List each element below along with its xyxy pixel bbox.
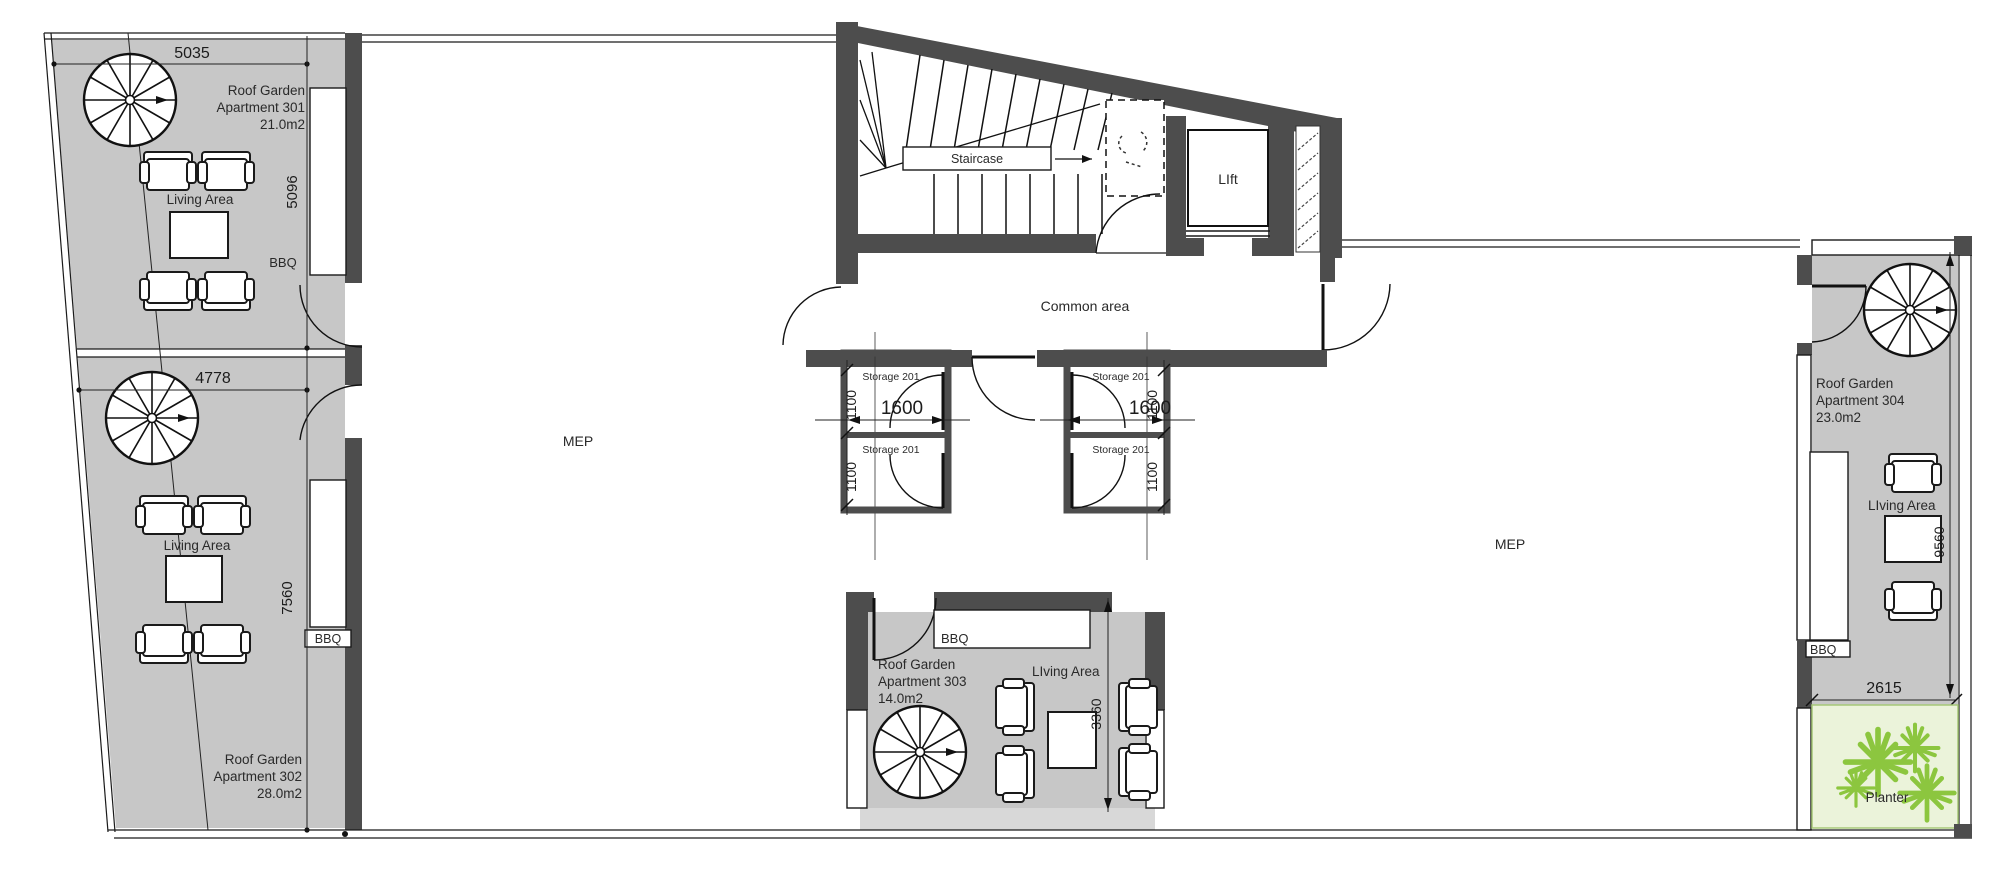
living-area-303-label: LIving Area [1032, 664, 1100, 679]
bbq-304-label: BBQ [1810, 643, 1837, 657]
mep-right: MEP [1342, 240, 1800, 552]
bbq-302-label: BBQ [315, 632, 342, 646]
hatched-shaft-strip [1296, 126, 1320, 252]
core-right-stub [1320, 258, 1335, 282]
living-area-304-label: LIving Area [1868, 498, 1936, 513]
apartment-302-name-line2: Apartment 302 [213, 769, 302, 784]
bbq-counter-302 [310, 480, 346, 627]
corner-block [1954, 236, 1972, 256]
dim-1100: 1100 [843, 462, 859, 492]
spiral-stair-icon-301 [84, 54, 176, 146]
apartment-304: Roof Garden Apartment 304 23.0m2 LIving … [1797, 236, 1972, 838]
common-left-stub [836, 264, 858, 284]
dim-1600: 1600 [1129, 398, 1171, 419]
spiral-stair-icon-303 [874, 706, 966, 798]
storage-label: Storage 201 [1092, 371, 1149, 383]
apartment-302-name-line3: 28.0m2 [257, 786, 302, 801]
floor-plan-drawing: Roof Garden Apartment 301 21.0m2 Living … [0, 0, 2000, 882]
dim-1100: 1100 [843, 390, 859, 420]
bbq-counter-304 [1810, 452, 1848, 640]
storage-label: Storage 201 [1092, 444, 1149, 456]
left-apartment-block: Roof Garden Apartment 301 21.0m2 Living … [44, 33, 362, 832]
apartment-302-name-line1: Roof Garden [225, 752, 302, 767]
dim-9560: 9560 [1931, 526, 1947, 557]
parapet [1797, 355, 1811, 640]
parapet [847, 710, 867, 808]
apartment-301-name-line1: Roof Garden [228, 83, 305, 98]
storage-label: Storage 201 [862, 444, 919, 456]
common-left-door-arc [783, 287, 841, 345]
apartment-303-name-line2: Apartment 303 [878, 674, 967, 689]
apartment-303-name-line3: 14.0m2 [878, 691, 923, 706]
dim-4778: 4778 [195, 370, 231, 387]
apartment-301-name-line3: 21.0m2 [260, 117, 305, 132]
lift-label: LIft [1218, 171, 1238, 187]
living-area-301-label: Living Area [167, 192, 234, 207]
mep-left-label: MEP [563, 433, 593, 449]
storage-door-arc [1072, 455, 1125, 508]
planter-label: Planter [1866, 790, 1909, 805]
spiral-stair-icon-302 [106, 372, 198, 464]
dim-2615: 2615 [1866, 680, 1902, 697]
dim-1600: 1600 [881, 398, 923, 419]
living-area-302-label: Living Area [164, 538, 231, 553]
apartment-303: BBQ Roof Garden Apartment 303 14.0m2 LIv… [846, 592, 1165, 830]
spiral-stair-icon-304 [1864, 264, 1956, 356]
bbq-303-label: BBQ [941, 631, 968, 646]
common-area-label: Common area [1041, 298, 1130, 314]
dim-7560: 7560 [279, 581, 296, 614]
dim-5035: 5035 [174, 45, 210, 62]
apartment-304-name-line3: 23.0m2 [1816, 410, 1861, 425]
divider-wall [77, 349, 345, 357]
mep-right-label: MEP [1495, 536, 1525, 552]
bbq-counter-301 [310, 88, 346, 275]
core-top-wall [836, 22, 1342, 141]
dim-1100: 1100 [1144, 462, 1160, 492]
apartment-301-name-line2: Apartment 301 [216, 100, 305, 115]
floor-plan-page: Roof Garden Apartment 301 21.0m2 Living … [0, 0, 2000, 882]
dim-5096: 5096 [284, 175, 301, 208]
mep-left: MEP [362, 35, 836, 449]
stair-lower-treads [934, 174, 1102, 234]
storage-door-arc [890, 455, 943, 508]
stair-direction-arrow [1082, 155, 1092, 163]
apartment-304-name-line2: Apartment 304 [1816, 393, 1905, 408]
staircase-label: Staircase [951, 152, 1003, 166]
apartment-304-name-line1: Roof Garden [1816, 376, 1893, 391]
hall-door-arc [972, 357, 1035, 420]
stair-bottom-wall [858, 234, 1096, 253]
corner-block [1954, 824, 1972, 838]
common-right-door-arc [1323, 284, 1390, 350]
common-area: Common area [783, 264, 1390, 350]
core-left-wall [836, 22, 858, 264]
wall [345, 33, 362, 283]
core-right-wall [1320, 118, 1342, 258]
core-block: Staircase LIft [783, 22, 1390, 420]
dashed-shaft-room [1096, 100, 1166, 253]
parapet-top [1812, 240, 1958, 255]
dim-3360: 3360 [1088, 698, 1104, 729]
parapet [1797, 708, 1811, 830]
lift: LIft [1166, 116, 1294, 256]
wall [345, 345, 362, 385]
shaft-door-arc [1096, 194, 1160, 253]
bbq-301-label: BBQ [269, 255, 296, 270]
balcony-strip [860, 808, 1155, 830]
storage-label: Storage 201 [862, 371, 919, 383]
storage-dims-1600: 1600 1600 [815, 398, 1195, 424]
planter: Planter [1812, 705, 1958, 828]
apartment-303-name-line1: Roof Garden [878, 657, 955, 672]
